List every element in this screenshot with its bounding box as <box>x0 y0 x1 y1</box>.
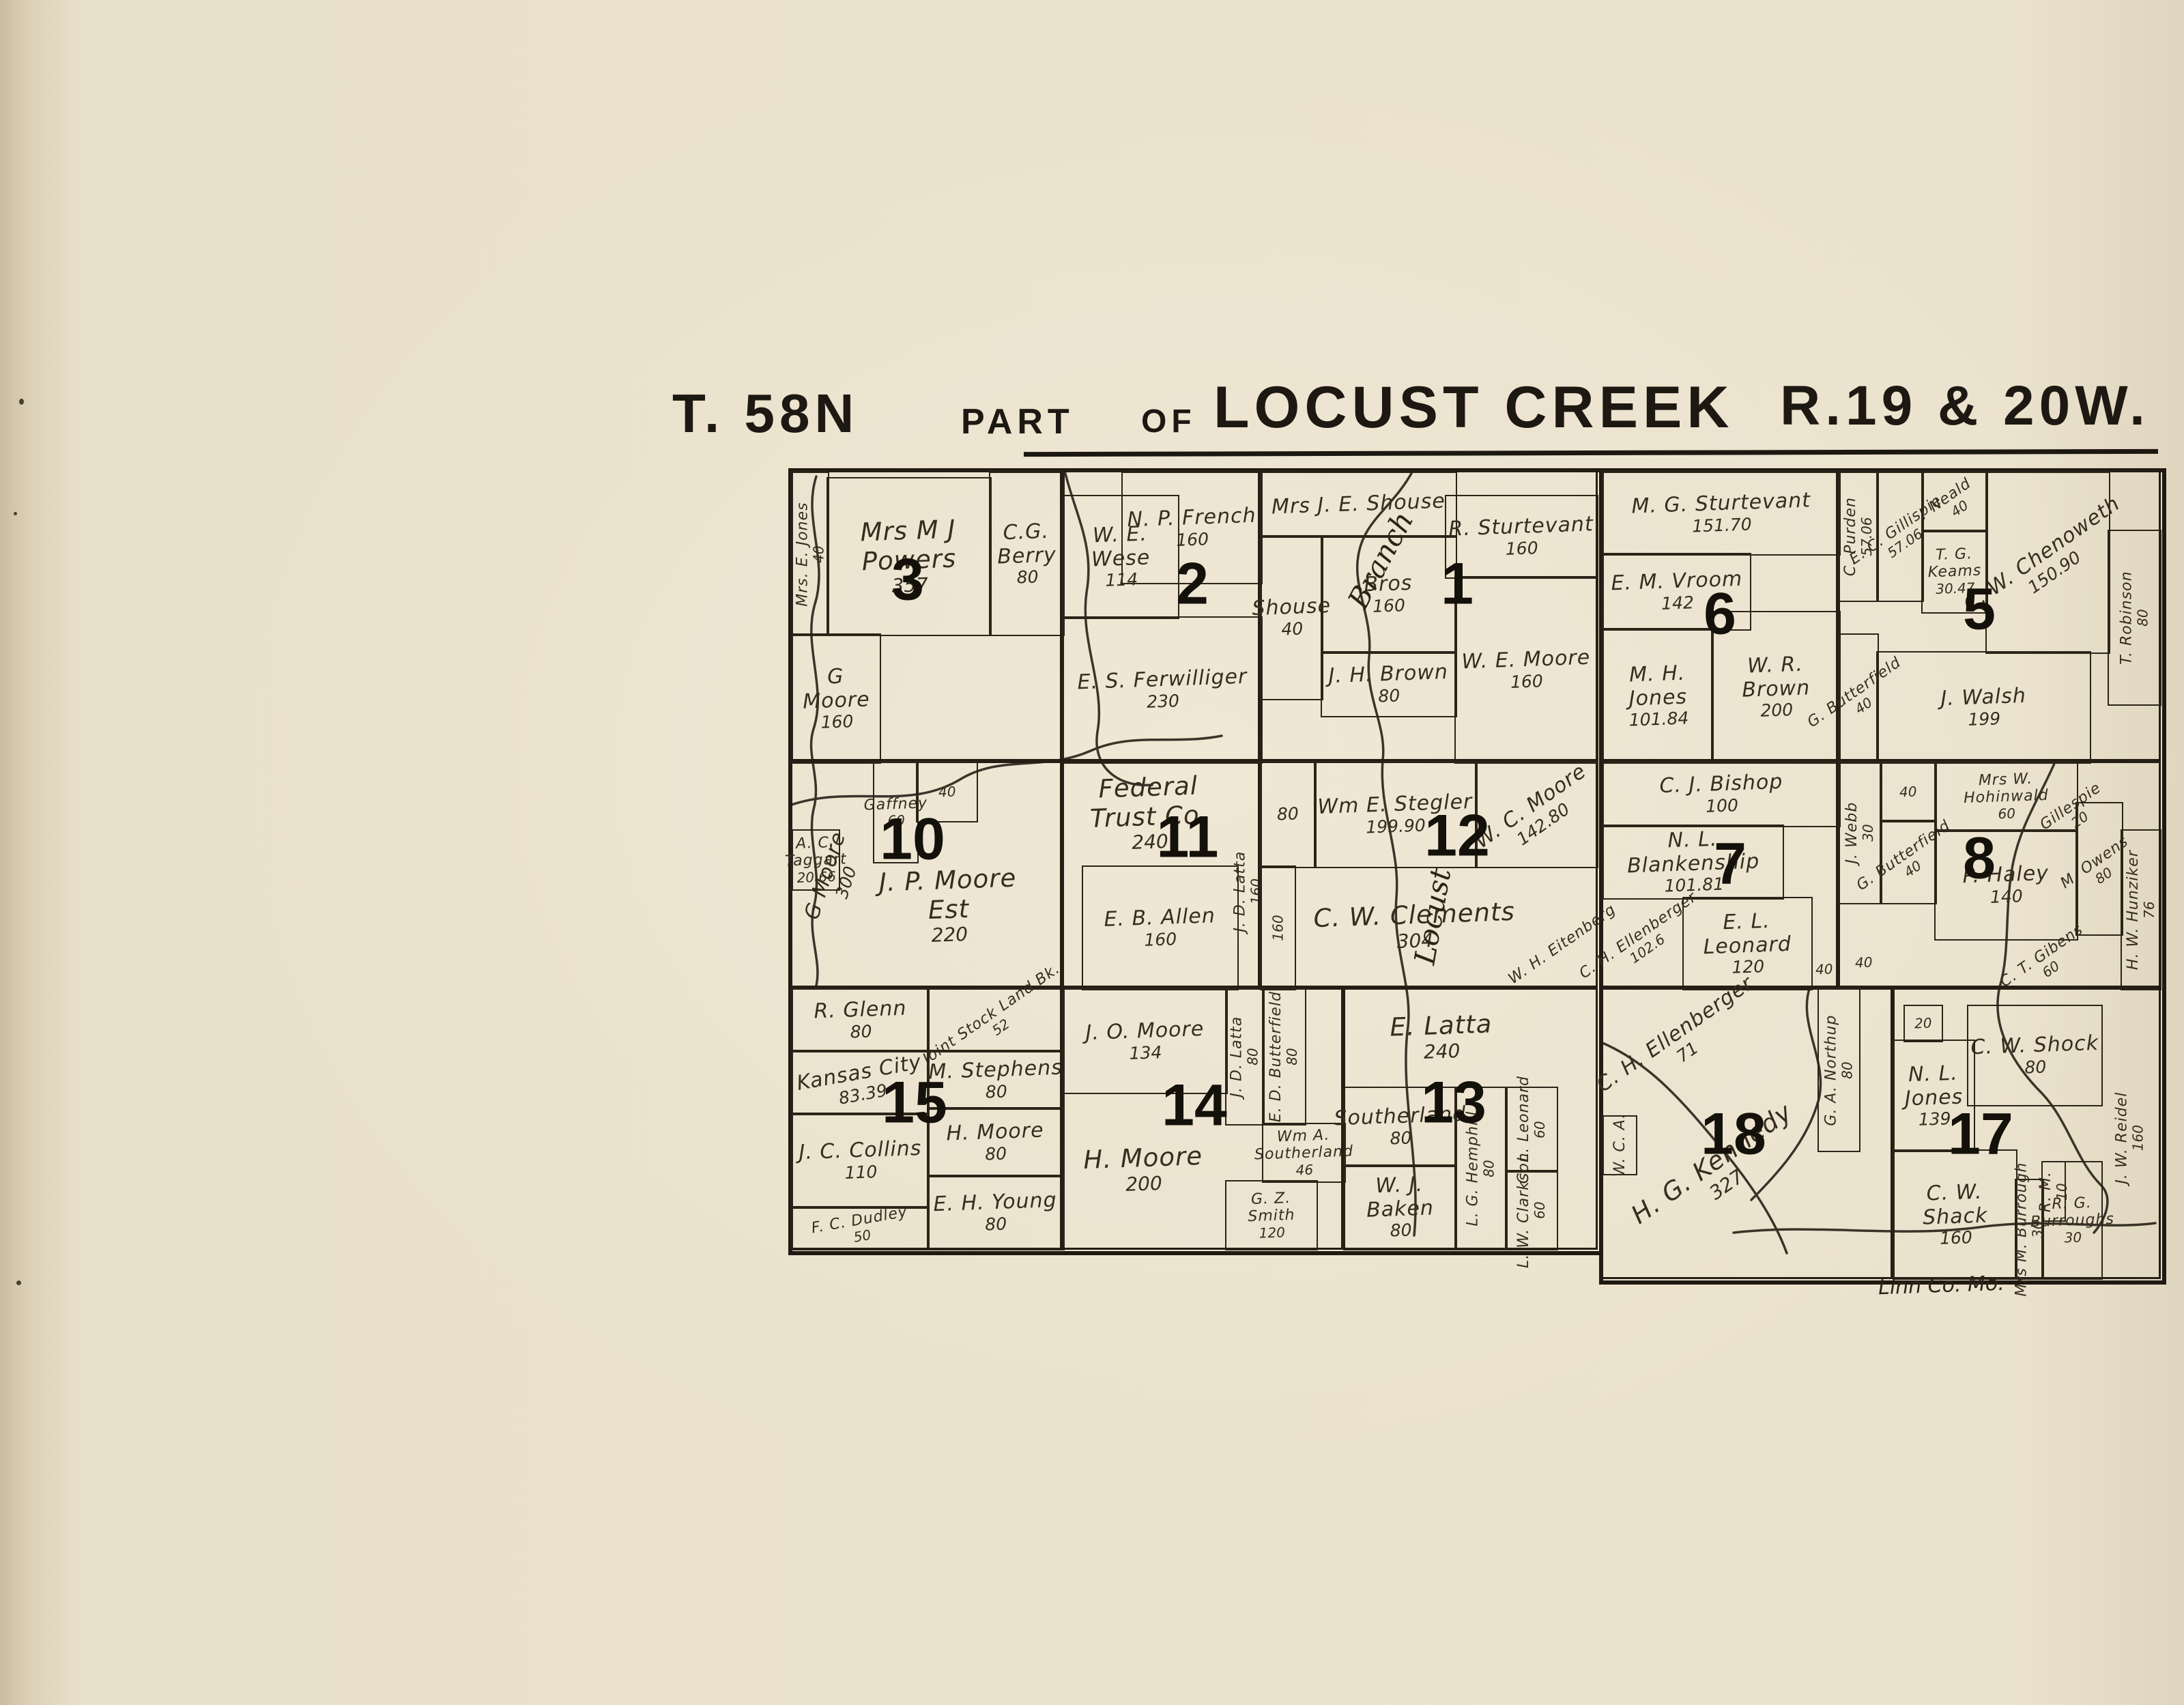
acreage: 30 <box>1861 824 1877 841</box>
owner-name: J. W. Reidel <box>2113 1092 2130 1184</box>
acreage: 80 <box>985 1082 1007 1102</box>
parcel-j-d-latta: J. D. Latta160 <box>1236 795 1260 988</box>
acreage: 120 <box>1259 1224 1285 1241</box>
owner-name: N. L. Blankenship <box>1603 826 1783 879</box>
parcel-text: Mrs. E. Jones40 <box>794 502 827 606</box>
parcel-acreage-40: 40 <box>1810 951 1838 988</box>
acreage: 76 <box>2142 901 2157 918</box>
acreage: 80 <box>2024 1057 2047 1078</box>
acreage: 50 <box>852 1227 872 1246</box>
parcel-text: M. H. Jones101.84 <box>1603 661 1713 731</box>
acreage: 80 <box>985 1214 1007 1235</box>
parcel-text: W. E. Wese114 <box>1062 521 1179 592</box>
acreage: 46 <box>1295 1162 1313 1178</box>
parcel-text: 20 <box>1914 1016 1932 1032</box>
acreage: 200 <box>1125 1173 1163 1196</box>
owner-name: Mrs M. Burrough <box>2013 1162 2030 1296</box>
parcel-c-w-shack: C. W. Shack160 <box>1893 1149 2017 1280</box>
parcel-text: W. C. A. <box>1611 1113 1628 1177</box>
section-number-14: 14 <box>1162 1072 1227 1140</box>
owner-name: E. Latta <box>1390 1009 1493 1042</box>
acreage: 20 <box>1914 1016 1932 1032</box>
parcel-m-stephens: M. Stephens80 <box>927 1050 1065 1110</box>
parcel-n-l-blankenship: N. L. Blankenship101.81 <box>1603 825 1784 900</box>
parcel-w-c-moore: W. C. Moore142.80 <box>1475 761 1598 868</box>
owner-name: W. R. Brown <box>1711 652 1840 703</box>
parcel-wm-a-southerland: Wm A. Southerland46 <box>1262 1123 1346 1183</box>
acreage: 200 <box>1760 700 1794 721</box>
parcel-w-c-a: W. C. A. <box>1603 1115 1637 1176</box>
parcel-text: H. W. Hunziker76 <box>2125 850 2157 970</box>
parcel-text: F. C. Dudley50 <box>810 1203 912 1252</box>
parcel-mrs-j-e-shouse: Mrs J. E. Shouse <box>1260 472 1457 538</box>
parcel-l-w-clarkson: L. W. Clarkson60 <box>1505 1170 1558 1250</box>
parcel-text: W. E. Moore160 <box>1461 646 1592 693</box>
parcel-text: Neald40 <box>1926 475 1983 529</box>
acreage: 160 <box>1270 915 1286 941</box>
parcel-text: T. Robinson80 <box>2118 571 2151 664</box>
parcel-acreage-160: 160 <box>1260 865 1296 990</box>
parcel-text: J. P. Moore Est220 <box>872 863 1026 949</box>
owner-name: E. H. Young <box>933 1189 1057 1217</box>
parcel-p-haley: P. Haley140 <box>1934 829 2078 941</box>
parcel-joint-stock-land-bk: Joint Stock Land Bk.52 <box>927 988 1065 1052</box>
section-number-8: 8 <box>1963 825 1996 893</box>
section-number-6: 6 <box>1704 581 1736 648</box>
section-number-7: 7 <box>1714 831 1747 898</box>
parcel-g-butterfield: G. Butterfield40 <box>1838 633 1879 764</box>
owner-name: C. H. Ellenberger <box>1592 972 1757 1098</box>
section-17: 20C. W. Shock80N. L. Jones139J. W. Reide… <box>1891 986 2161 1279</box>
parcel-text: C. W. Shock80 <box>1970 1032 2100 1080</box>
parcel-text: E. L. Leonard120 <box>1683 908 1813 979</box>
parcel-c-h-ellenberger: C. H. Ellenberger71 <box>1609 993 1754 1091</box>
parcel-c-h-ellenberger: C. H. Ellenberger102.6 <box>1603 897 1682 988</box>
acreage: 160 <box>1510 671 1544 691</box>
acreage: 110 <box>844 1162 878 1182</box>
acreage: 80 <box>1246 1048 1261 1065</box>
acreage: 120 <box>1732 957 1765 977</box>
acreage: 80 <box>1482 1160 1497 1177</box>
owner-name: J. D. Latta <box>1228 1016 1246 1098</box>
parcel-text: A. C. Taggart20 66 <box>784 833 848 886</box>
section-number-12: 12 <box>1424 803 1490 870</box>
parcel-text: J. Webb30 <box>1843 802 1876 864</box>
acreage: 40 <box>811 545 827 562</box>
parcel-e-s-ferwilliger: E. S. Ferwilliger230 <box>1062 616 1263 764</box>
owner-name: H. Moore <box>1083 1142 1203 1175</box>
parcel-text: N. L. Blankenship101.81 <box>1603 826 1783 899</box>
owner-name: J. Walsh <box>1940 685 2026 711</box>
acreage: 40 <box>1854 955 1872 971</box>
parcel-w-j-baken: W. J. Baken80 <box>1343 1164 1457 1250</box>
parcel-text: 40 <box>938 784 956 800</box>
parcel-text: 40 <box>1899 784 1917 800</box>
owner-name: E. L. Leonard <box>1683 908 1812 959</box>
parcel-text: C. J. Bishop100 <box>1659 771 1784 818</box>
owner-name: C.G. Berry <box>989 519 1063 569</box>
parcel-text: Shouse40 <box>1251 594 1332 640</box>
acreage: 160 <box>1144 929 1177 949</box>
parcel-text: E. D. Butterfield80 <box>1267 991 1300 1122</box>
owner-name: E. B. Allen <box>1104 904 1216 932</box>
owner-name: M. Stephens <box>928 1056 1063 1084</box>
acreage: 80 <box>850 1022 872 1042</box>
acreage: 101.84 <box>1628 708 1689 730</box>
parcel-w-e-wese: W. E. Wese114 <box>1062 495 1179 619</box>
acreage: 20 66 <box>797 869 837 886</box>
acreage: 199 <box>1968 708 2001 729</box>
parcel-acreage-80: 80 <box>1260 761 1317 868</box>
acreage: 139 <box>1918 1109 1951 1130</box>
acreage: 80 <box>1378 686 1400 706</box>
acreage: 80 <box>1390 1128 1412 1149</box>
parcel-text: H. Moore200 <box>1083 1142 1204 1197</box>
section-number-10: 10 <box>880 806 945 874</box>
acreage: 80 <box>1839 1061 1855 1078</box>
parcel-text: W. J. Baken80 <box>1343 1172 1456 1242</box>
parcel-c-t-gibens: C. T. Gibens60 <box>2005 938 2088 988</box>
parcel-text: G Moore160 <box>792 664 880 734</box>
parcel-text: J. H. Brown80 <box>1328 661 1449 708</box>
owner-name: G. Z. Smith <box>1226 1188 1317 1226</box>
section-10: G Moore300A. C. Taggart20 66Gaffney6040J… <box>790 759 1064 990</box>
acreage: 40 <box>1899 784 1917 800</box>
acreage: 160 <box>820 712 854 732</box>
acreage: 60 <box>1532 1121 1548 1138</box>
owner-name: M. G. Sturtevant <box>1631 489 1811 519</box>
parcel-e-b-allen: E. B. Allen160 <box>1082 865 1239 990</box>
parcel-h-moore: H. Moore80 <box>927 1107 1065 1177</box>
section-5: C. Purden57.06E. C. Gillispie57.06Neald4… <box>1836 470 2161 763</box>
acreage: 114 <box>1105 570 1138 590</box>
parcel-text: 160 <box>1270 915 1286 941</box>
section-number-13: 13 <box>1421 1070 1486 1137</box>
parcel-acreage-40: 40 <box>1844 943 1882 984</box>
parcel-text: C. W. Shack160 <box>1893 1179 2017 1250</box>
owner-name: J. Webb <box>1843 802 1860 864</box>
owner-name: H. W. Hunziker <box>2125 850 2142 970</box>
section-number-2: 2 <box>1176 551 1209 618</box>
owner-name: J. D. Latta <box>1231 850 1248 932</box>
parcel-mrs-e-jones: Mrs. E. Jones40 <box>792 472 829 636</box>
parcel-j-walsh: J. Walsh199 <box>1876 651 2090 764</box>
acreage: 220 <box>931 923 968 947</box>
parcel-acreage-20: 20 <box>1903 1005 1944 1042</box>
owner-name: T. Robinson <box>2118 571 2135 664</box>
acreage: 100 <box>1706 796 1739 816</box>
parcel-text: J. D. Latta80 <box>1228 1016 1261 1098</box>
section-number-18: 18 <box>1701 1101 1766 1169</box>
parcel-r-m: R. M.10 <box>2041 1161 2065 1222</box>
owner-name: R. Glenn <box>814 997 907 1024</box>
acreage: 160 <box>1506 538 1539 558</box>
acreage: 80 <box>2136 609 2151 626</box>
owner-name: H. Moore <box>946 1119 1044 1146</box>
parcel-text: R. M.10 <box>2037 1171 2070 1212</box>
owner-name: M. H. Jones <box>1603 661 1712 711</box>
parcel-text: J. Walsh199 <box>1940 685 2027 731</box>
owner-name: R. M. <box>2037 1171 2054 1212</box>
owner-name: W. J. Baken <box>1343 1172 1456 1223</box>
parcel-text: E. H. Young80 <box>933 1189 1058 1237</box>
parcel-c-g-berry: C.G. Berry80 <box>989 472 1065 636</box>
parcel-h-w-hunziker: H. W. Hunziker76 <box>2121 829 2161 990</box>
parcel-c-j-bishop: C. J. Bishop100 <box>1603 761 1841 827</box>
parcel-m-g-sturtevant: M. G. Sturtevant151.70 <box>1603 472 1841 556</box>
parcel-e-h-young: E. H. Young80 <box>927 1175 1065 1250</box>
acreage: 160 <box>1176 530 1209 550</box>
parcel-e-d-butterfield: E. D. Butterfield80 <box>1262 988 1307 1126</box>
section-number-17: 17 <box>1948 1101 2013 1169</box>
owner-name: J. C. Collins <box>799 1137 922 1165</box>
acreage: 40 <box>1815 961 1833 977</box>
parcel-g-a-northup: G. A. Northup80 <box>1817 988 1861 1152</box>
parcel-shouse: Shouse40 <box>1260 535 1323 700</box>
parcel-text: 40 <box>1815 961 1833 977</box>
parcel-r-glenn: R. Glenn80 <box>792 988 930 1052</box>
parcel-text: J. C. Collins110 <box>799 1137 923 1184</box>
parcel-t-robinson: T. Robinson80 <box>2108 530 2161 706</box>
parcel-j-h-brown: J. H. Brown80 <box>1321 651 1458 717</box>
parcel-text: G. A. Northup80 <box>1822 1014 1855 1126</box>
parcel-c-w-chenoweth: C. W. Chenoweth150.90 <box>1985 472 2110 654</box>
acreage: 40 <box>938 784 956 800</box>
plat-map: Mrs. E. Jones40Mrs M J Powers357C.G. Ber… <box>0 0 2184 1705</box>
parcel-acreage-40: 40 <box>1880 761 1937 822</box>
section-2: N. P. French160W. E. Wese114E. S. Ferwil… <box>1060 470 1262 763</box>
section-1: Mrs J. E. ShouseShouse40Bros160R. Sturte… <box>1258 470 1598 763</box>
parcel-text: R. Glenn80 <box>814 997 908 1044</box>
parcel-text: 80 <box>1277 804 1299 825</box>
parcel-e-c-gillispie: E. C. Gillispie57.06 <box>1876 472 1924 602</box>
parcel-text: W. C. Moore142.80 <box>1471 760 1602 870</box>
parcel-text: C.G. Berry80 <box>989 519 1064 588</box>
parcel-text: J. O. Moore134 <box>1085 1018 1205 1065</box>
acreage: 230 <box>1146 691 1179 712</box>
owner-name: Shouse <box>1251 594 1331 621</box>
parcel-text: G. Z. Smith120 <box>1226 1188 1317 1242</box>
section-number-3: 3 <box>891 547 924 614</box>
owner-name: A. C. Taggart <box>784 833 847 870</box>
owner-name: J. H. Brown <box>1328 661 1448 689</box>
parcel-neald: Neald40 <box>1921 472 1988 532</box>
parcel-c-w-shock: C. W. Shock80 <box>1967 1005 2103 1106</box>
section-3: Mrs. E. Jones40Mrs M J Powers357C.G. Ber… <box>790 470 1064 763</box>
parcel-text: E. Latta240 <box>1390 1009 1493 1064</box>
parcel-text: E. B. Allen160 <box>1104 904 1216 951</box>
owner-name: L. W. Clarkson <box>1515 1152 1532 1268</box>
parcel-g-butterfield: G. Butterfield40 <box>1880 820 1937 904</box>
acreage: 80 <box>1016 567 1039 588</box>
owner-name: E. D. Butterfield <box>1267 991 1284 1122</box>
section-8: J. Webb3040G. Butterfield40Mrs W. Hohinw… <box>1836 759 2161 990</box>
parcel-text: M. G. Sturtevant151.70 <box>1631 489 1812 538</box>
acreage: 80 <box>1390 1221 1412 1242</box>
section-number-15: 15 <box>882 1070 947 1137</box>
parcel-text: L. W. Clarkson60 <box>1515 1152 1548 1268</box>
parcel-text: H. Moore80 <box>946 1119 1045 1166</box>
section-number-5: 5 <box>1963 576 1996 644</box>
owner-name: C. W. Shack <box>1893 1179 2017 1231</box>
acreage: 10 <box>2054 1183 2070 1200</box>
acreage: 40 <box>1280 619 1303 640</box>
owner-name: W. E. Wese <box>1062 521 1178 573</box>
acreage: 240 <box>1424 1040 1461 1063</box>
owner-name: R. Sturtevant <box>1448 513 1594 541</box>
parcel-text: M. Stephens80 <box>928 1056 1063 1104</box>
acreage: 30 <box>2064 1230 2082 1246</box>
section-number-11: 11 <box>1157 804 1219 872</box>
acreage: 60 <box>1532 1201 1548 1218</box>
owner-name: G Moore <box>792 664 880 714</box>
parcel-text: J. W. Reidel160 <box>2113 1092 2146 1184</box>
parcel-j-d-latta: J. D. Latta80 <box>1225 988 1265 1126</box>
owner-name: W. C. A. <box>1611 1113 1628 1177</box>
parcel-m-owens: M. Owens80 <box>2075 802 2123 936</box>
parcel-text: E. S. Ferwilliger230 <box>1077 665 1248 715</box>
owner-name: Mrs. E. Jones <box>794 502 811 606</box>
acreage: 30 <box>2030 1220 2046 1237</box>
owner-name: W. E. Moore <box>1461 646 1591 674</box>
acreage: 80 <box>985 1144 1007 1164</box>
acreage: 60 <box>1998 805 2015 822</box>
owner-name: C. J. Bishop <box>1659 771 1783 799</box>
owner-name: Mrs J. E. Shouse <box>1271 490 1446 519</box>
parcel-g-z-smith: G. Z. Smith120 <box>1225 1180 1318 1250</box>
parcel-f-c-dudley: F. C. Dudley50 <box>792 1206 930 1250</box>
owner-name: C. W. Shock <box>1970 1032 2099 1060</box>
owner-name: E. S. Ferwilliger <box>1077 665 1248 695</box>
parcel-w-e-moore: W. E. Moore160 <box>1454 576 1598 764</box>
map-credit: Linn Co. Mo. <box>1878 1272 2005 1300</box>
acreage: 80 <box>1285 1048 1301 1065</box>
acreage: 80 <box>1277 804 1299 825</box>
acreage: 151.70 <box>1692 515 1752 536</box>
acreage: 160 <box>2130 1125 2146 1151</box>
parcel-text: 40 <box>1854 955 1872 971</box>
parcel-text: Mrs J. E. Shouse <box>1271 490 1446 519</box>
acreage: 134 <box>1129 1042 1162 1063</box>
owner-name: G. A. Northup <box>1822 1014 1839 1126</box>
parcel-m-h-jones: M. H. Jones101.84 <box>1603 628 1714 764</box>
parcel-g-moore: G Moore160 <box>792 633 881 764</box>
acreage: 199.90 <box>1366 816 1426 837</box>
acreage: 160 <box>1940 1228 1973 1248</box>
section-11: Federal Trust Co.240E. B. Allen160J. D. … <box>1060 759 1262 990</box>
owner-name: J. O. Moore <box>1085 1018 1205 1046</box>
section-number-1: 1 <box>1441 551 1474 618</box>
acreage: 142 <box>1661 593 1694 614</box>
parcel-a-c-taggart: A. C. Taggart20 66 <box>792 829 840 891</box>
